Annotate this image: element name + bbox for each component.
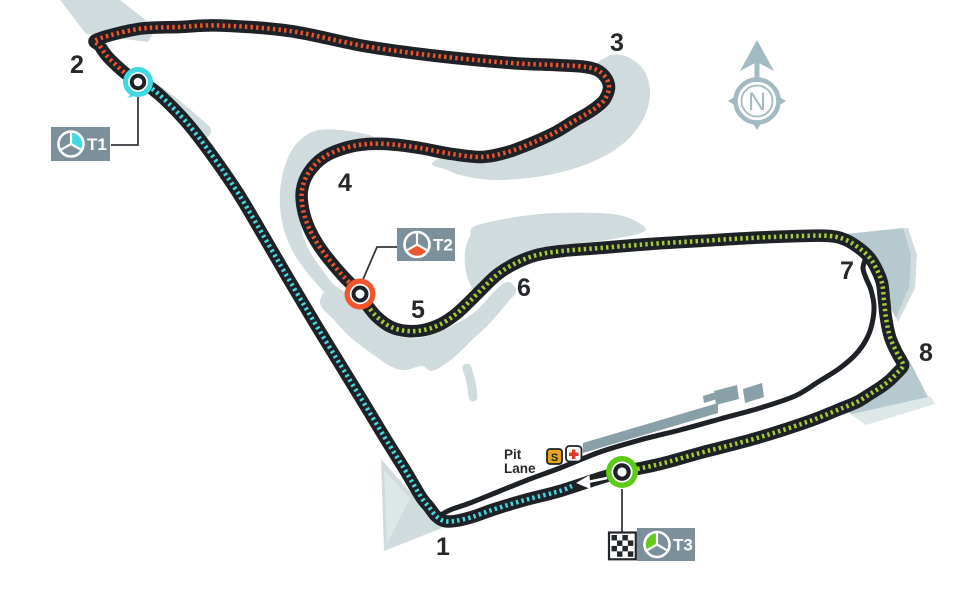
svg-text:T1: T1 xyxy=(87,135,107,154)
svg-text:1: 1 xyxy=(436,533,450,561)
svg-text:T3: T3 xyxy=(673,536,693,555)
svg-text:T2: T2 xyxy=(433,236,453,255)
svg-text:3: 3 xyxy=(610,29,624,57)
svg-text:S: S xyxy=(551,452,558,464)
svg-text:6: 6 xyxy=(517,274,531,302)
svg-text:4: 4 xyxy=(338,169,352,197)
svg-text:Pit: Pit xyxy=(504,447,522,462)
svg-text:5: 5 xyxy=(411,296,425,324)
svg-text:7: 7 xyxy=(840,257,854,285)
svg-text:Lane: Lane xyxy=(504,461,536,476)
svg-text:8: 8 xyxy=(919,339,933,367)
svg-text:N: N xyxy=(748,88,766,116)
svg-text:2: 2 xyxy=(70,51,84,79)
